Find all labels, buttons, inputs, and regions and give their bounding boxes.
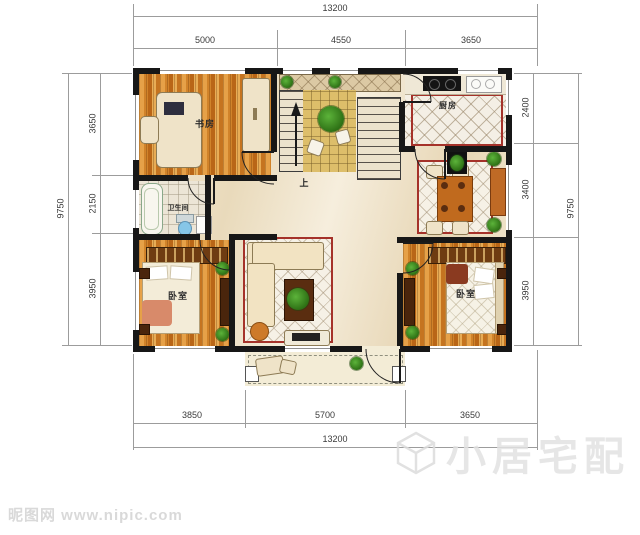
wall-bedr-left bbox=[397, 273, 403, 352]
plant-icon bbox=[487, 218, 501, 232]
plant-icon bbox=[287, 288, 309, 310]
plant-icon bbox=[406, 262, 419, 275]
plate bbox=[458, 182, 465, 189]
brand-watermark: 小居宅配 bbox=[396, 424, 630, 482]
tv-cabinet bbox=[404, 278, 415, 326]
study-label: 书房 bbox=[185, 117, 225, 130]
brand-watermark-text: 小居宅配 bbox=[446, 424, 630, 482]
desk-chair bbox=[140, 116, 159, 144]
dim-line-right-segments bbox=[533, 73, 534, 345]
plant-icon bbox=[350, 357, 363, 370]
window bbox=[506, 80, 512, 115]
extension-line bbox=[514, 143, 578, 144]
wall-bedr-top bbox=[397, 237, 512, 243]
extension-line bbox=[133, 354, 134, 450]
dim-bottom-total: 13200 bbox=[305, 434, 365, 445]
wall-kitchen-bottom-a bbox=[399, 146, 415, 152]
extension-line bbox=[62, 345, 132, 346]
window bbox=[133, 272, 139, 330]
plant-icon bbox=[216, 262, 229, 275]
window bbox=[330, 68, 358, 74]
window bbox=[285, 346, 330, 352]
stairs-up-label: 上 bbox=[296, 176, 312, 189]
dim-line-right-total bbox=[578, 73, 579, 345]
dim-right-total: 9750 bbox=[566, 179, 577, 239]
window bbox=[506, 165, 512, 230]
bed-throw bbox=[446, 264, 468, 284]
cabinet-handle bbox=[253, 108, 257, 120]
wall-bathroom-right bbox=[205, 175, 211, 240]
bedroom-left-label: 卧室 bbox=[158, 289, 198, 302]
wall-study-bottom-a bbox=[133, 175, 188, 181]
plate bbox=[441, 205, 448, 212]
extension-line bbox=[245, 390, 246, 428]
bed-throw bbox=[142, 300, 172, 326]
dim-right-seg-2: 3400 bbox=[521, 160, 532, 220]
stair-flight-left bbox=[279, 90, 305, 172]
pillow bbox=[170, 265, 193, 281]
dim-left-seg-2: 2150 bbox=[88, 174, 99, 234]
pouf bbox=[250, 322, 269, 341]
window bbox=[283, 68, 312, 74]
shoe-bench bbox=[279, 358, 298, 375]
tv-screen bbox=[292, 333, 320, 341]
stair-flight-right bbox=[357, 97, 401, 180]
dim-top-total: 13200 bbox=[305, 3, 365, 14]
wall-study-right bbox=[271, 68, 277, 152]
dim-right-seg-3: 3950 bbox=[521, 261, 532, 321]
extension-line bbox=[514, 73, 582, 74]
nightstand bbox=[139, 268, 150, 279]
plant-icon bbox=[281, 76, 293, 88]
nightstand bbox=[139, 324, 150, 335]
extension-line bbox=[514, 345, 582, 346]
wall-bedl-right bbox=[229, 234, 235, 352]
dim-left-total: 9750 bbox=[56, 179, 67, 239]
window bbox=[160, 68, 245, 74]
kitchen-label: 厨房 bbox=[428, 100, 468, 111]
plant-icon bbox=[450, 155, 464, 171]
window bbox=[133, 190, 139, 228]
dim-left-seg-1: 3650 bbox=[88, 94, 99, 154]
dim-top-seg-3: 3650 bbox=[441, 35, 501, 46]
extension-line bbox=[133, 4, 134, 66]
plant-icon bbox=[487, 152, 501, 166]
sink-bowl bbox=[471, 79, 481, 89]
window bbox=[155, 346, 215, 352]
plate bbox=[458, 205, 465, 212]
extension-line bbox=[62, 73, 132, 74]
plant-icon bbox=[318, 106, 344, 132]
site-watermark: 昵图网 www.nipic.com bbox=[8, 504, 183, 525]
window bbox=[133, 95, 139, 160]
wall-kitchen-bottom-b bbox=[445, 146, 512, 152]
window bbox=[458, 68, 498, 74]
plant-icon bbox=[329, 76, 341, 88]
wall-kitchen-left bbox=[399, 102, 405, 152]
extension-line bbox=[277, 30, 278, 66]
sideboard bbox=[490, 168, 506, 216]
sink-bowl bbox=[485, 79, 495, 89]
dim-right-seg-1: 2400 bbox=[521, 78, 532, 138]
dim-line-left-total bbox=[68, 73, 69, 345]
dim-bottom-seg-3: 3650 bbox=[440, 410, 500, 421]
dim-line-left-segments bbox=[100, 73, 101, 345]
dim-top-seg-2: 4550 bbox=[311, 35, 371, 46]
dim-bottom-seg-2: 5700 bbox=[295, 410, 355, 421]
extension-line bbox=[405, 390, 406, 428]
monitor bbox=[164, 102, 184, 115]
dim-line-top-total bbox=[133, 16, 537, 17]
extension-line bbox=[405, 30, 406, 66]
plate bbox=[441, 182, 448, 189]
burner bbox=[445, 79, 456, 90]
sofa-left bbox=[247, 263, 275, 327]
wall-bedl-top bbox=[230, 234, 277, 240]
wall-bathroom-bottom bbox=[133, 234, 200, 240]
burner bbox=[429, 79, 440, 90]
dining-chair bbox=[452, 221, 469, 235]
porch-column bbox=[392, 366, 406, 382]
dim-top-seg-1: 5000 bbox=[175, 35, 235, 46]
dim-left-seg-3: 3950 bbox=[88, 259, 99, 319]
wall-study-bottom-b bbox=[214, 175, 277, 181]
plant-icon bbox=[406, 326, 419, 339]
floor-plan-canvas: 13200 5000 4550 3650 3850 5700 3650 1320… bbox=[0, 0, 640, 535]
bedroom-right-label: 卧室 bbox=[446, 287, 486, 300]
dim-line-top-segments bbox=[133, 48, 537, 49]
window bbox=[430, 346, 492, 352]
bathroom-label: 卫生间 bbox=[152, 203, 204, 213]
brand-cube-icon bbox=[396, 431, 436, 475]
dim-bottom-seg-1: 3850 bbox=[162, 410, 222, 421]
dining-chair bbox=[426, 221, 443, 235]
plant-icon bbox=[216, 328, 229, 341]
extension-line bbox=[537, 4, 538, 66]
door-opening bbox=[362, 346, 400, 352]
pillow bbox=[473, 267, 495, 285]
